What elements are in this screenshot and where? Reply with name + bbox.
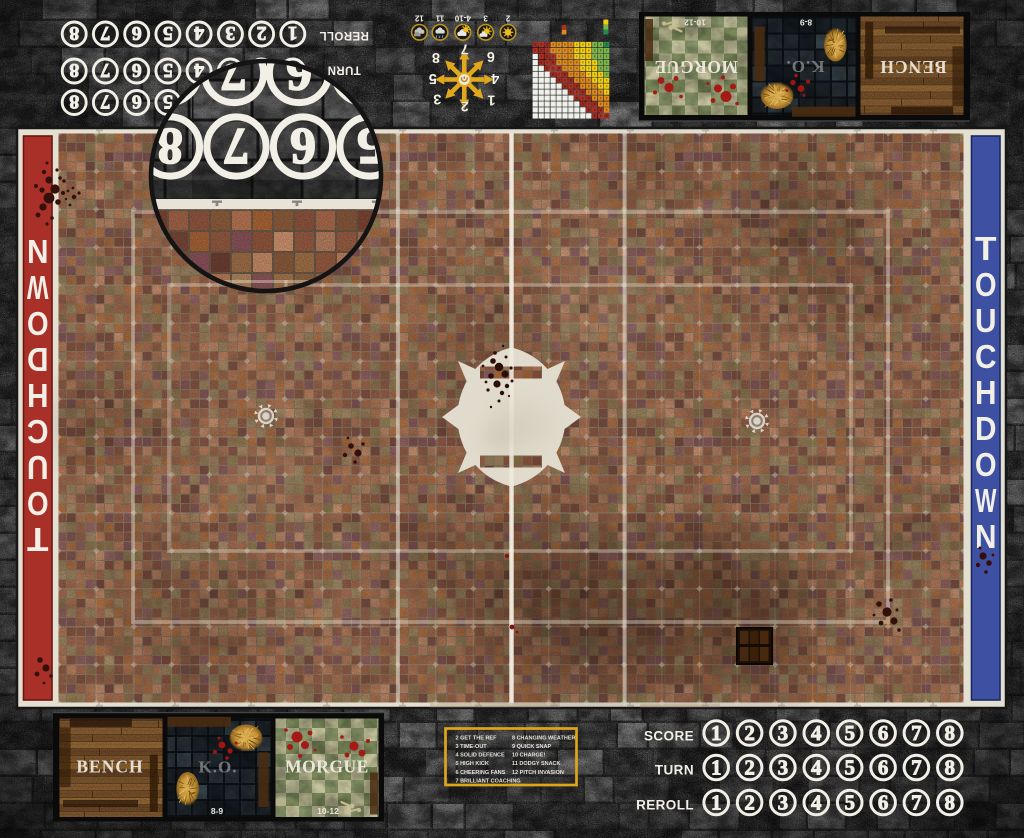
- svg-text:D: D: [27, 341, 49, 378]
- svg-text:5: 5: [429, 70, 437, 86]
- svg-text:3: 3: [483, 14, 488, 23]
- svg-text:7 BRILLIANT COACHING: 7 BRILLIANT COACHING: [456, 779, 521, 785]
- svg-text:6: 6: [132, 91, 142, 113]
- svg-text:2: 2: [505, 14, 510, 23]
- svg-text:4 SOLID DEFENCE: 4 SOLID DEFENCE: [456, 753, 506, 759]
- svg-text:11 DODGY SNACK: 11 DODGY SNACK: [512, 761, 561, 767]
- svg-text:6: 6: [878, 791, 889, 815]
- svg-text:7: 7: [100, 91, 110, 113]
- svg-text:MORGUE: MORGUE: [654, 57, 738, 77]
- svg-text:2: 2: [461, 97, 469, 113]
- svg-text:5 HIGH KICK: 5 HIGH KICK: [456, 761, 489, 767]
- svg-text:6: 6: [132, 59, 142, 81]
- svg-text:8-9: 8-9: [211, 806, 224, 816]
- svg-text:O: O: [975, 266, 997, 303]
- svg-text:3: 3: [778, 791, 789, 815]
- svg-text:8 CHANGING WEATHER: 8 CHANGING WEATHER: [512, 735, 575, 741]
- svg-text:2: 2: [744, 721, 755, 745]
- svg-text:O: O: [27, 485, 49, 522]
- svg-text:1: 1: [711, 721, 722, 745]
- svg-text:7: 7: [224, 117, 250, 174]
- svg-text:5: 5: [163, 22, 173, 44]
- svg-text:TURN: TURN: [327, 63, 361, 75]
- svg-text:W: W: [975, 482, 997, 519]
- svg-text:4: 4: [811, 791, 822, 815]
- svg-text:2: 2: [744, 756, 755, 780]
- svg-text:4: 4: [811, 756, 822, 780]
- svg-text:7: 7: [100, 59, 110, 81]
- svg-text:8: 8: [432, 49, 440, 65]
- svg-text:7: 7: [100, 22, 110, 44]
- svg-text:2: 2: [744, 791, 755, 815]
- svg-text:3: 3: [433, 90, 441, 106]
- svg-text:1: 1: [711, 756, 722, 780]
- svg-text:REROLL: REROLL: [319, 29, 369, 41]
- svg-text:O: O: [27, 305, 49, 342]
- svg-text:U: U: [975, 302, 997, 339]
- svg-text:8: 8: [945, 721, 956, 745]
- svg-text:MORGUE: MORGUE: [285, 757, 369, 777]
- svg-text:8: 8: [69, 91, 79, 113]
- svg-text:6: 6: [132, 22, 142, 44]
- svg-text:5: 5: [844, 791, 855, 815]
- svg-text:1: 1: [711, 791, 722, 815]
- svg-text:7: 7: [911, 721, 922, 745]
- svg-text:O: O: [975, 446, 997, 483]
- svg-text:TURN: TURN: [655, 762, 694, 777]
- svg-text:4-10: 4-10: [454, 14, 471, 23]
- svg-text:8-9: 8-9: [800, 18, 813, 28]
- svg-text:H: H: [975, 374, 997, 411]
- svg-text:K.O.: K.O.: [199, 758, 238, 777]
- svg-text:8: 8: [69, 59, 79, 81]
- svg-text:4: 4: [811, 721, 822, 745]
- svg-text:T: T: [975, 230, 997, 267]
- svg-text:10-12: 10-12: [317, 806, 339, 816]
- svg-text:1: 1: [288, 22, 298, 44]
- svg-text:U: U: [27, 449, 49, 486]
- svg-text:1: 1: [487, 92, 495, 108]
- svg-text:7: 7: [461, 41, 469, 57]
- svg-text:3: 3: [225, 22, 235, 44]
- svg-text:5: 5: [163, 59, 173, 81]
- svg-text:N: N: [27, 233, 49, 270]
- svg-text:C: C: [27, 413, 49, 450]
- svg-text:BENCH: BENCH: [76, 757, 143, 777]
- svg-text:4: 4: [491, 70, 499, 86]
- svg-text:8: 8: [69, 22, 79, 44]
- svg-text:3: 3: [778, 756, 789, 780]
- svg-text:11: 11: [435, 14, 444, 23]
- svg-text:2 GET THE REF: 2 GET THE REF: [456, 735, 498, 741]
- svg-text:3: 3: [778, 721, 789, 745]
- svg-text:7: 7: [911, 791, 922, 815]
- svg-text:BENCH: BENCH: [879, 57, 946, 77]
- svg-text:D: D: [975, 410, 997, 447]
- svg-text:10-12: 10-12: [684, 18, 706, 28]
- svg-text:6: 6: [878, 721, 889, 745]
- svg-text:8: 8: [945, 756, 956, 780]
- svg-text:K.O.: K.O.: [786, 57, 825, 76]
- svg-text:6: 6: [878, 756, 889, 780]
- svg-text:W: W: [26, 269, 48, 306]
- svg-text:12: 12: [414, 14, 423, 23]
- svg-text:7: 7: [911, 756, 922, 780]
- svg-text:9 QUICK SNAP: 9 QUICK SNAP: [512, 744, 551, 750]
- svg-text:6: 6: [290, 117, 316, 174]
- svg-text:4: 4: [194, 22, 204, 44]
- svg-text:SCORE: SCORE: [644, 728, 694, 743]
- svg-text:2: 2: [257, 22, 267, 44]
- svg-text:C: C: [975, 338, 997, 375]
- svg-text:10 CHARGE!: 10 CHARGE!: [512, 753, 545, 759]
- svg-text:T: T: [27, 521, 49, 558]
- svg-text:H: H: [27, 377, 49, 414]
- svg-text:5: 5: [844, 756, 855, 780]
- svg-text:3 TIME-OUT: 3 TIME-OUT: [456, 744, 488, 750]
- svg-text:8: 8: [945, 791, 956, 815]
- svg-text:12 PITCH INVASION: 12 PITCH INVASION: [512, 770, 564, 776]
- svg-text:6 CHEERING FANS: 6 CHEERING FANS: [456, 770, 506, 776]
- svg-text:REROLL: REROLL: [636, 797, 694, 812]
- svg-text:N: N: [975, 518, 997, 555]
- svg-text:5: 5: [844, 721, 855, 745]
- svg-text:6: 6: [487, 48, 495, 64]
